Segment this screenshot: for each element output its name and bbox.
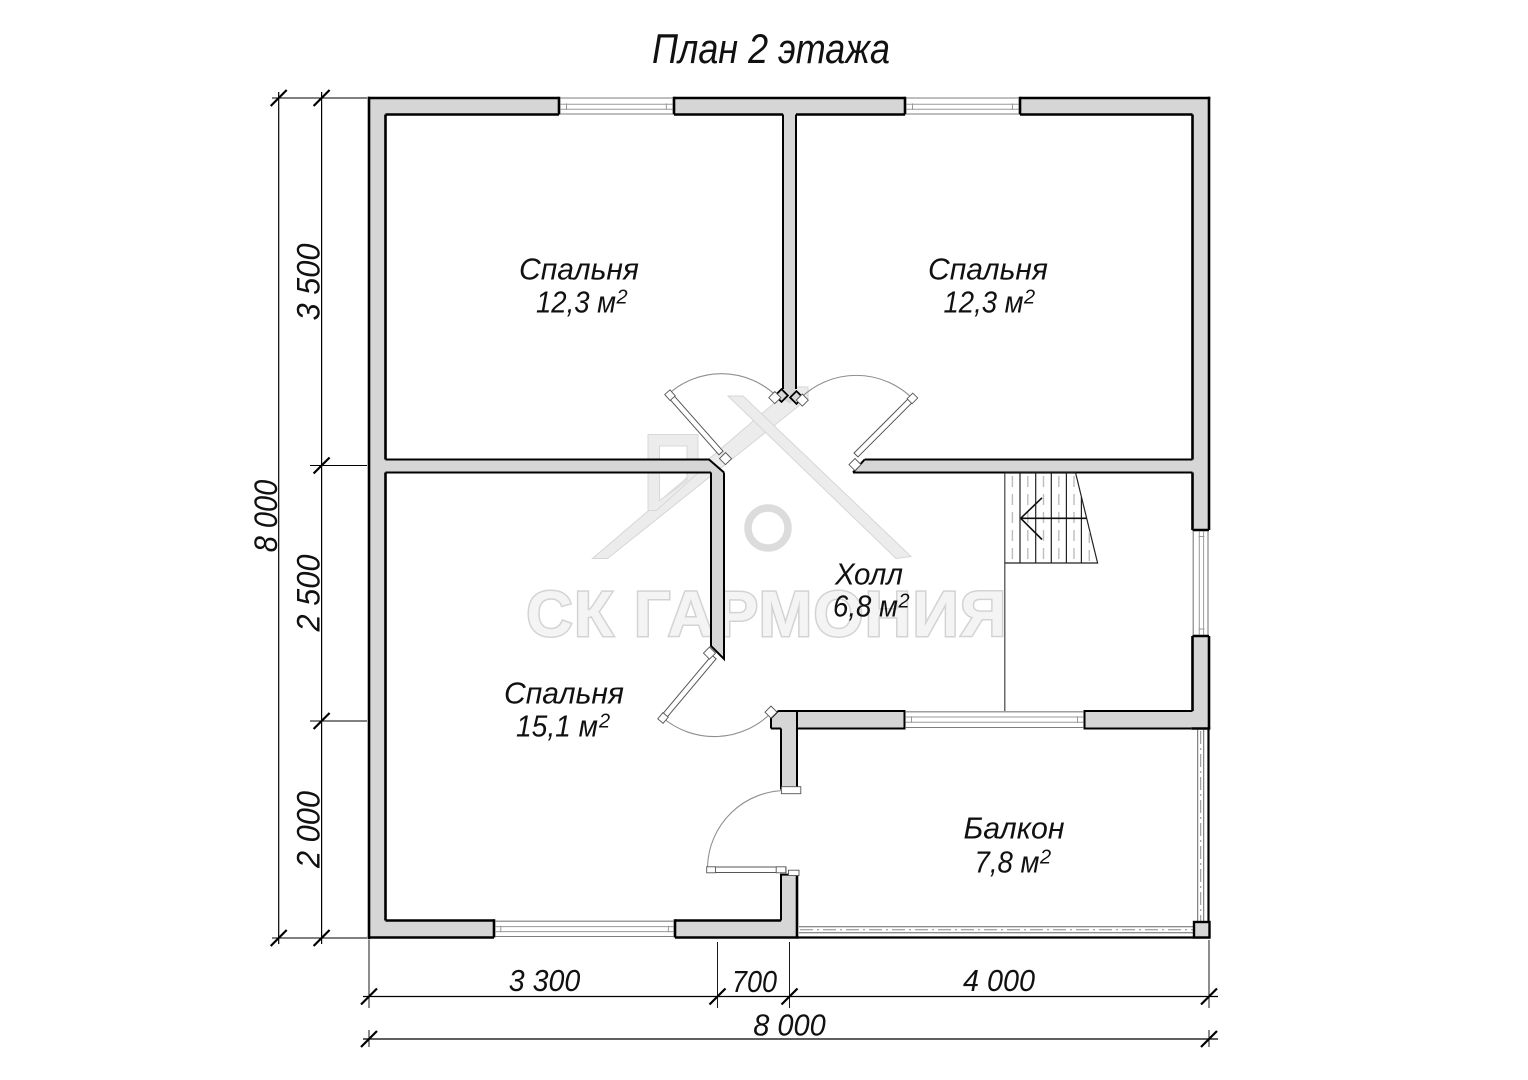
svg-text:3 500: 3 500 — [291, 243, 327, 320]
svg-text:7,8 м: 7,8 м — [975, 845, 1040, 880]
svg-text:Спальня: Спальня — [504, 676, 624, 711]
svg-text:2: 2 — [1023, 287, 1035, 309]
svg-text:4 000: 4 000 — [963, 964, 1035, 998]
svg-text:2: 2 — [1039, 847, 1051, 869]
svg-text:6,8 м: 6,8 м — [833, 589, 898, 624]
svg-text:2 000: 2 000 — [291, 791, 327, 869]
svg-text:8 000: 8 000 — [753, 1009, 826, 1043]
svg-text:Спальня: Спальня — [928, 252, 1048, 287]
svg-text:700: 700 — [732, 965, 777, 999]
svg-text:2: 2 — [898, 591, 910, 613]
svg-text:15,1 м: 15,1 м — [516, 709, 598, 744]
svg-text:8 000: 8 000 — [248, 480, 284, 553]
svg-text:Спальня: Спальня — [519, 252, 639, 287]
svg-text:СК ГАРМОНИЯ: СК ГАРМОНИЯ — [526, 578, 1007, 650]
svg-text:План 2 этажа: План 2 этажа — [652, 25, 890, 72]
svg-text:Балкон: Балкон — [964, 811, 1065, 846]
svg-text:2: 2 — [598, 711, 610, 733]
svg-text:Холл: Холл — [834, 557, 903, 592]
svg-text:2: 2 — [616, 287, 628, 309]
svg-text:12,3 м: 12,3 м — [536, 285, 616, 320]
svg-text:3 300: 3 300 — [509, 964, 581, 998]
svg-text:2 500: 2 500 — [291, 554, 327, 632]
svg-text:12,3 м: 12,3 м — [944, 285, 1024, 320]
